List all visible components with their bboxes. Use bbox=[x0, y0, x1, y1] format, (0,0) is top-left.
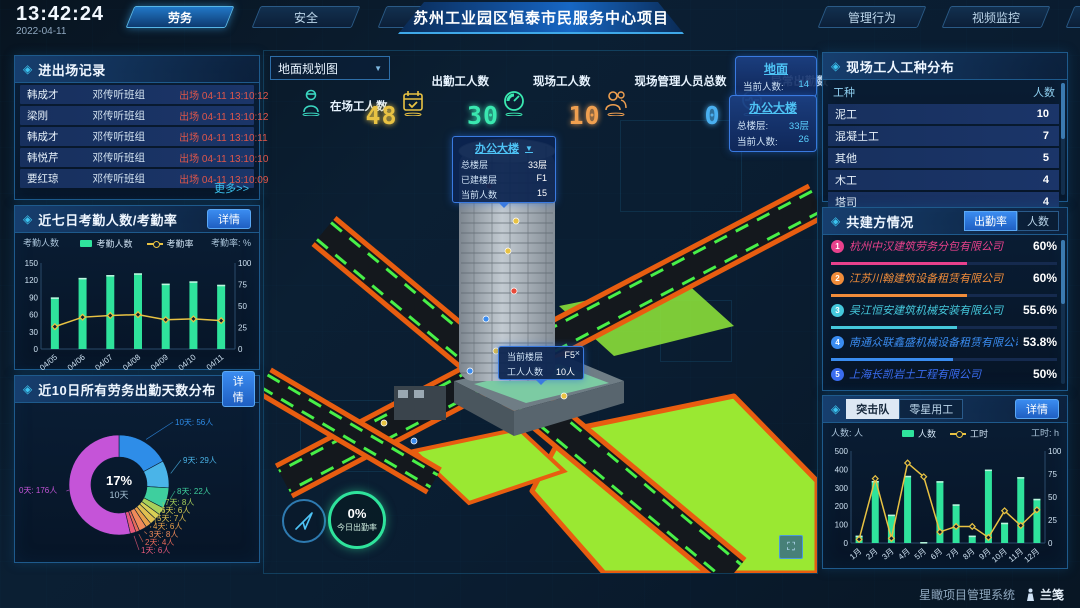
svg-text:2月: 2月 bbox=[864, 547, 879, 562]
clock: 13:42:24 2022-04-11 bbox=[16, 4, 104, 37]
monthly-tab-突击队[interactable]: 突击队 bbox=[846, 399, 899, 419]
diamond-icon: ◈ bbox=[23, 383, 32, 395]
stat-value: 0 bbox=[705, 103, 721, 128]
worker-table-header: 工种 人数 bbox=[823, 80, 1067, 102]
svg-text:25: 25 bbox=[1048, 516, 1057, 525]
svg-text:300: 300 bbox=[835, 484, 849, 493]
svg-text:50: 50 bbox=[1048, 493, 1057, 502]
donut-label: 8天: 22人 bbox=[177, 487, 211, 496]
scrollbar[interactable] bbox=[1061, 83, 1065, 195]
clock-date: 2022-04-11 bbox=[16, 27, 104, 37]
chevron-down-icon: ▼ bbox=[374, 64, 382, 73]
line-legend-swatch bbox=[950, 433, 966, 435]
monthly-detail-button[interactable]: 详情 bbox=[1015, 399, 1059, 419]
svg-text:8月: 8月 bbox=[961, 547, 976, 562]
svg-text:50: 50 bbox=[238, 302, 247, 311]
rank-badge: 2 bbox=[831, 272, 844, 285]
map-card-地面[interactable]: 地面当前人数:14 bbox=[735, 56, 817, 97]
title-banner: 苏州工业园区恒泰市民服务中心项目 bbox=[398, 2, 684, 34]
svg-text:400: 400 bbox=[835, 465, 849, 474]
donut-label: 9天: 29人 bbox=[183, 456, 217, 465]
scrollbar[interactable] bbox=[1061, 240, 1065, 384]
diamond-icon: ◈ bbox=[23, 213, 32, 225]
partners-toggle: 出勤率人数 bbox=[964, 211, 1059, 231]
building-tooltip[interactable]: 办公大楼 ▼ 总楼层33层已建楼层F1当前人数15 bbox=[452, 136, 556, 203]
svg-text:12月: 12月 bbox=[1022, 547, 1041, 565]
attendance-percent: 0% bbox=[348, 507, 367, 521]
more-link[interactable]: 更多>> bbox=[214, 180, 249, 196]
svg-text:500: 500 bbox=[835, 447, 849, 456]
diamond-icon: ◈ bbox=[23, 63, 32, 75]
svg-text:100: 100 bbox=[238, 259, 252, 268]
svg-text:04/11: 04/11 bbox=[205, 352, 226, 372]
attendance-legend: 考勤人数 考勤率 bbox=[15, 237, 259, 250]
header-right-tabs: 管理行为视频监控热力图 bbox=[822, 6, 1080, 28]
entry-exit-row[interactable]: 韩悦芹邓传听班组出场 04-11 13:10:10 bbox=[20, 148, 254, 167]
people-icon bbox=[601, 86, 631, 116]
map-card-办公大楼[interactable]: 办公大楼总楼层:33层当前人数:26 bbox=[729, 95, 817, 152]
entry-exit-row[interactable]: 梁刚邓传听班组出场 04-11 13:10:12 bbox=[20, 106, 254, 125]
svg-text:75: 75 bbox=[1048, 470, 1057, 479]
today-attendance-badge: 0% 今日出勤率 bbox=[328, 491, 386, 549]
svg-text:04/09: 04/09 bbox=[149, 352, 171, 372]
footer-logo-text: 兰笺 bbox=[1040, 586, 1064, 603]
line-legend-swatch bbox=[147, 243, 163, 245]
floor-tooltip[interactable]: × 当前楼层F5工人人数10人 bbox=[498, 346, 584, 380]
svg-text:3月: 3月 bbox=[880, 547, 895, 562]
diamond-icon: ◈ bbox=[831, 215, 840, 227]
svg-text:100: 100 bbox=[1048, 447, 1062, 456]
svg-text:0: 0 bbox=[34, 345, 39, 354]
svg-text:200: 200 bbox=[835, 502, 849, 511]
company-item[interactable]: 4南通众联鑫盛机械设备租赁有限公司53.8% bbox=[831, 334, 1057, 363]
rank-badge: 4 bbox=[831, 336, 844, 349]
svg-text:0: 0 bbox=[238, 345, 243, 354]
svg-text:150: 150 bbox=[25, 259, 39, 268]
gauge-icon bbox=[499, 86, 529, 116]
partners-toggle-出勤率[interactable]: 出勤率 bbox=[964, 211, 1017, 231]
svg-text:11月: 11月 bbox=[1007, 547, 1025, 564]
monthly-panel: ◈ 突击队零星用工 详情 人数 工时 人数: 人 工时: h 010020030… bbox=[822, 395, 1068, 569]
svg-text:7月: 7月 bbox=[945, 547, 960, 562]
stat-value: 30 bbox=[467, 103, 499, 128]
header-tab-热力图[interactable]: 热力图 bbox=[1070, 6, 1080, 28]
entry-exit-row[interactable]: 韩成才邓传听班组出场 04-11 13:10:11 bbox=[20, 127, 254, 146]
monthly-tabs: 突击队零星用工 bbox=[846, 399, 1009, 419]
donut-center-percent: 17% bbox=[106, 473, 132, 488]
svg-text:4月: 4月 bbox=[897, 547, 912, 562]
fullscreen-icon[interactable]: ⛶ bbox=[779, 535, 803, 559]
worker-type-title: 现场工人工种分布 bbox=[846, 57, 1059, 76]
svg-text:30: 30 bbox=[29, 328, 38, 337]
company-item[interactable]: 5上海长凯岩土工程有限公司50% bbox=[831, 366, 1057, 391]
header-tab-视频监控[interactable]: 视频监控 bbox=[946, 6, 1046, 28]
attendance-detail-button[interactable]: 详情 bbox=[207, 209, 251, 229]
worker-type-row[interactable]: 其他5 bbox=[828, 148, 1059, 168]
footer: 星瞰项目管理系统 兰笺 bbox=[919, 586, 1064, 603]
footer-brand: 兰笺 bbox=[1025, 586, 1064, 603]
diamond-icon: ◈ bbox=[831, 403, 840, 415]
donut-label: 10天: 56人 bbox=[175, 418, 213, 427]
svg-text:04/08: 04/08 bbox=[121, 352, 143, 372]
worker-type-row[interactable]: 木工4 bbox=[828, 170, 1059, 190]
svg-text:60: 60 bbox=[29, 311, 38, 320]
svg-text:0: 0 bbox=[1048, 539, 1053, 548]
svg-text:6月: 6月 bbox=[929, 547, 944, 562]
header: 13:42:24 2022-04-11 劳务安全工期 苏州工业园区恒泰市民服务中… bbox=[0, 0, 1080, 42]
building-tooltip-title[interactable]: 办公大楼 ▼ bbox=[453, 137, 555, 157]
rank-badge: 3 bbox=[831, 304, 844, 317]
svg-text:04/10: 04/10 bbox=[177, 352, 199, 372]
entry-exit-panel: ◈ 进出场记录 韩成才邓传听班组出场 04-11 13:10:12梁刚邓传听班组… bbox=[14, 55, 260, 200]
distribution-panel: ◈ 近10日所有劳务出勤天数分布 详情 10天: 56人9天: 29人8天: 2… bbox=[14, 375, 260, 563]
monthly-legend: 人数 工时 bbox=[823, 427, 1067, 440]
partners-panel: ◈ 共建方情况 出勤率人数 1杭州中汉建筑劳务分包有限公司60%2江苏川翰建筑设… bbox=[822, 207, 1068, 391]
partners-title: 共建方情况 bbox=[846, 212, 958, 231]
header-tab-安全[interactable]: 安全 bbox=[256, 6, 356, 28]
monthly-combo-chart: 010020030040050002550751001月2月3月4月5月6月7月… bbox=[827, 445, 1063, 569]
close-icon[interactable]: × bbox=[575, 348, 580, 358]
map-scene[interactable]: 地面规划图 ▼ 在场工人数出勤工人数48现场工人数30现场管理人员总数10异常出… bbox=[263, 50, 818, 574]
svg-text:04/07: 04/07 bbox=[93, 352, 115, 372]
svg-text:90: 90 bbox=[29, 293, 38, 302]
company-item[interactable]: 3吴江恒安建筑机械安装有限公司55.6% bbox=[831, 302, 1057, 331]
svg-text:25: 25 bbox=[238, 324, 247, 333]
attendance-caption: 今日出勤率 bbox=[337, 522, 377, 533]
donut-label: 0天: 176人 bbox=[19, 486, 57, 495]
donut-label: 1天: 6人 bbox=[141, 546, 170, 555]
attendance-days-donut: 10天: 56人9天: 29人8天: 22人7天: 8人6天: 6人5天: 7人… bbox=[15, 403, 259, 561]
clock-time: 13:42:24 bbox=[16, 4, 104, 24]
worker-icon bbox=[296, 86, 326, 116]
svg-text:1月: 1月 bbox=[848, 547, 863, 562]
worker-type-row[interactable]: 泥工10 bbox=[828, 104, 1059, 124]
svg-text:75: 75 bbox=[238, 281, 247, 290]
bar-legend-swatch bbox=[902, 430, 914, 437]
navigation-arrow-icon bbox=[293, 510, 315, 532]
worker-type-panel: ◈ 现场工人工种分布 工种 人数 泥工10混凝土工7其他5木工4塔司4 bbox=[822, 52, 1068, 202]
svg-text:100: 100 bbox=[835, 521, 849, 530]
distribution-detail-button[interactable]: 详情 bbox=[222, 371, 255, 407]
svg-text:0: 0 bbox=[844, 539, 849, 548]
diamond-icon: ◈ bbox=[831, 60, 840, 72]
worker-type-row[interactable]: 混凝土工7 bbox=[828, 126, 1059, 146]
svg-text:5月: 5月 bbox=[913, 547, 928, 562]
header-tab-劳务[interactable]: 劳务 bbox=[130, 6, 230, 28]
donut-center-label: 10天 bbox=[109, 490, 128, 500]
rank-badge: 1 bbox=[831, 240, 844, 253]
compass-button[interactable] bbox=[282, 499, 326, 543]
calendar-icon bbox=[398, 86, 428, 116]
company-item[interactable]: 1杭州中汉建筑劳务分包有限公司60% bbox=[831, 238, 1057, 267]
partners-toggle-人数[interactable]: 人数 bbox=[1017, 211, 1059, 231]
monthly-tab-零星用工[interactable]: 零星用工 bbox=[899, 399, 963, 419]
entry-exit-row[interactable]: 韩成才邓传听班组出场 04-11 13:10:12 bbox=[20, 85, 254, 104]
footer-logo-icon bbox=[1025, 588, 1036, 601]
svg-text:10月: 10月 bbox=[990, 547, 1009, 565]
stat-value: 48 bbox=[366, 103, 398, 128]
system-name: 星瞰项目管理系统 bbox=[919, 586, 1015, 603]
header-tab-管理行为[interactable]: 管理行为 bbox=[822, 6, 922, 28]
entry-exit-title: 进出场记录 bbox=[38, 60, 251, 79]
distribution-title: 近10日所有劳务出勤天数分布 bbox=[38, 380, 215, 399]
company-item[interactable]: 2江苏川翰建筑设备租赁有限公司60% bbox=[831, 270, 1057, 299]
bar-legend-swatch bbox=[80, 240, 92, 247]
svg-text:04/05: 04/05 bbox=[38, 352, 60, 372]
svg-text:04/06: 04/06 bbox=[66, 352, 88, 372]
stat-value: 10 bbox=[569, 103, 601, 128]
attendance-title: 近七日考勤人数/考勤率 bbox=[38, 210, 201, 229]
page-title: 苏州工业园区恒泰市民服务中心项目 bbox=[413, 7, 669, 28]
svg-text:120: 120 bbox=[25, 276, 39, 285]
attendance-combo-chart: 0306090120150025507510004/0504/0604/0704… bbox=[19, 257, 255, 375]
attendance-chart-panel: ◈ 近七日考勤人数/考勤率 详情 考勤人数 考勤率 考勤人数 考勤率: % 03… bbox=[14, 205, 260, 370]
chevron-down-icon: ▼ bbox=[525, 144, 533, 153]
rank-badge: 5 bbox=[831, 368, 844, 381]
